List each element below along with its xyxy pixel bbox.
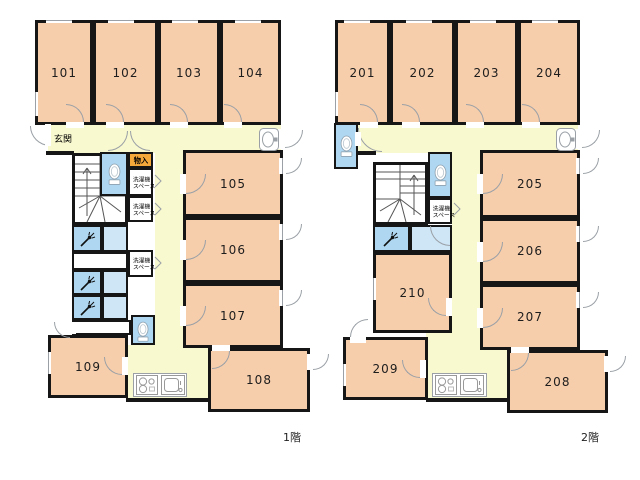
- laundry-label-line2: スペース: [133, 183, 155, 189]
- storage-label: 物入: [133, 155, 147, 165]
- shower-icon: [78, 300, 96, 318]
- wall-segment: [356, 151, 376, 155]
- kitchen-sink-icon: [460, 375, 484, 395]
- laundry-space-2: 洗濯機スペース: [128, 196, 153, 222]
- shower-icon: [78, 231, 96, 249]
- laundry-label-line1: 洗濯機: [133, 177, 150, 183]
- door-gap: [224, 122, 242, 128]
- exterior-door-arc: [313, 354, 329, 370]
- window: [32, 92, 38, 116]
- room-203: 203: [455, 20, 518, 125]
- door-gap: [106, 122, 124, 128]
- exterior-door-arc: [610, 356, 626, 372]
- exterior-door-arc: [286, 290, 302, 306]
- door-gap: [180, 306, 186, 326]
- folding-door-icon: [154, 256, 162, 270]
- toilet-room-1f-b: [131, 315, 155, 345]
- toilet-icon: [107, 161, 122, 187]
- shower-icon: [78, 275, 96, 293]
- room-206-label: 206: [517, 244, 543, 258]
- room-203-label: 203: [474, 66, 500, 80]
- room-101: 101: [35, 20, 93, 125]
- door-gap: [355, 132, 361, 146]
- room-205-label: 205: [517, 177, 543, 191]
- room-210-label: 210: [400, 286, 426, 300]
- door-gap: [212, 345, 230, 351]
- toilet-icon: [339, 133, 354, 159]
- laundry-label-line1: 洗濯機: [133, 204, 150, 210]
- toilet-room-2f-a: [334, 123, 358, 169]
- laundry-label-line1: 洗濯機: [133, 258, 150, 264]
- window: [172, 17, 198, 23]
- hallway-sink-icon: [259, 128, 279, 151]
- window: [406, 17, 432, 23]
- door-gap: [466, 122, 484, 128]
- room-104-label: 104: [238, 66, 264, 80]
- door-gap: [122, 357, 128, 375]
- stairs-icon: [376, 165, 425, 222]
- door-gap: [45, 124, 51, 146]
- floor2-label: 2階: [581, 429, 599, 445]
- door-gap: [180, 174, 186, 194]
- door-gap: [477, 174, 483, 194]
- folding-door-icon: [154, 202, 162, 216]
- laundry-label-line2: スペース: [433, 212, 455, 218]
- room-103-label: 103: [176, 66, 202, 80]
- door-gap: [522, 122, 540, 128]
- room-103: 103: [158, 20, 220, 125]
- room-208-label: 208: [545, 375, 571, 389]
- laundry-label-line2: スペース: [133, 210, 155, 216]
- window: [370, 278, 376, 300]
- window: [45, 352, 51, 374]
- room-202: 202: [390, 20, 455, 125]
- floor1-label: 1階: [283, 429, 301, 445]
- room-209-label: 209: [373, 362, 399, 376]
- window: [46, 17, 72, 23]
- toilet-room-1f-a: [100, 152, 128, 196]
- room-207-label: 207: [517, 310, 543, 324]
- window: [470, 17, 496, 23]
- window: [279, 158, 285, 174]
- wall-segment: [46, 151, 74, 155]
- shower-room-3: [72, 295, 102, 320]
- room-102: 102: [93, 20, 158, 125]
- shower-room-1: [72, 225, 102, 252]
- kitchen-sink-icon: [161, 375, 185, 395]
- room-102-label: 102: [113, 66, 139, 80]
- room-106-label: 106: [220, 243, 246, 257]
- exterior-door-arc: [583, 226, 599, 242]
- exterior-door-arc: [583, 158, 599, 174]
- storage-closet: 物入: [128, 152, 153, 168]
- stove-icon: [136, 375, 158, 395]
- exterior-door-arc: [286, 224, 302, 240]
- door-gap: [360, 122, 378, 128]
- room-109-label: 109: [75, 360, 101, 374]
- stove-icon: [435, 375, 457, 395]
- room-105-label: 105: [220, 177, 246, 191]
- room-210: 210: [373, 252, 452, 333]
- folding-door-icon: [154, 174, 162, 188]
- window: [108, 17, 134, 23]
- door-gap: [477, 308, 483, 328]
- window: [340, 364, 346, 386]
- door-gap: [604, 356, 610, 372]
- floor2-plan: 201 202 203 204 205 206 207 208 209 210: [330, 12, 630, 462]
- staircase-2f: [373, 162, 428, 225]
- room-107-label: 107: [220, 309, 246, 323]
- vestibule-1f: [72, 320, 131, 335]
- door-gap: [170, 122, 188, 128]
- wall-segment: [426, 398, 509, 402]
- door-gap: [402, 122, 420, 128]
- door-gap: [307, 354, 313, 370]
- room-204-label: 204: [536, 66, 562, 80]
- floor1-plan: 101 102 103 104 105 106 107 108 109 物入 洗…: [30, 12, 330, 462]
- laundry-space-2f: 洗濯機スペース: [428, 198, 452, 224]
- window: [279, 224, 285, 240]
- door-gap: [420, 360, 426, 378]
- shower-anteroom-2: [102, 270, 128, 295]
- entrance-label: 玄関: [54, 132, 72, 145]
- window: [532, 17, 558, 23]
- door-gap: [180, 240, 186, 260]
- hallway-sink-icon: [556, 128, 576, 151]
- room-108-label: 108: [246, 373, 272, 387]
- door-gap: [350, 337, 366, 343]
- door-gap: [70, 322, 76, 334]
- laundry-space-1: 洗濯機スペース: [128, 168, 153, 196]
- exterior-door-arc: [582, 130, 600, 148]
- window: [235, 17, 261, 23]
- folding-door-icon: [453, 202, 461, 216]
- door-gap: [511, 347, 529, 353]
- shower-room-2: [72, 270, 102, 295]
- toilet-room-2f-b: [428, 152, 452, 198]
- toilet-icon: [433, 162, 448, 188]
- window: [576, 292, 582, 308]
- exterior-door-arc: [350, 319, 368, 337]
- exterior-door-arc: [583, 292, 599, 308]
- window: [344, 17, 370, 23]
- door-gap: [446, 298, 452, 316]
- window: [576, 226, 582, 242]
- laundry-label-line2: スペース: [133, 264, 155, 270]
- window: [576, 158, 582, 174]
- room-101-label: 101: [51, 66, 77, 80]
- shower-room-2f: [373, 225, 410, 252]
- room-201-label: 201: [350, 66, 376, 80]
- exterior-door-arc: [285, 130, 303, 148]
- wall-segment: [126, 398, 210, 402]
- toilet-icon: [136, 320, 150, 343]
- shower-icon: [381, 231, 399, 249]
- window: [279, 290, 285, 306]
- service-hall: [72, 252, 128, 270]
- laundry-space-3: 洗濯機スペース: [128, 250, 153, 277]
- exterior-door-arc: [286, 158, 302, 174]
- room-202-label: 202: [410, 66, 436, 80]
- door-gap: [477, 242, 483, 262]
- door-gap: [66, 122, 84, 128]
- laundry-label-line1: 洗濯機: [433, 206, 450, 212]
- shower-anteroom-3: [102, 295, 128, 320]
- floorplan-canvas: 101 102 103 104 105 106 107 108 109 物入 洗…: [0, 0, 640, 480]
- window: [332, 92, 338, 116]
- shower-anteroom-1: [102, 225, 128, 252]
